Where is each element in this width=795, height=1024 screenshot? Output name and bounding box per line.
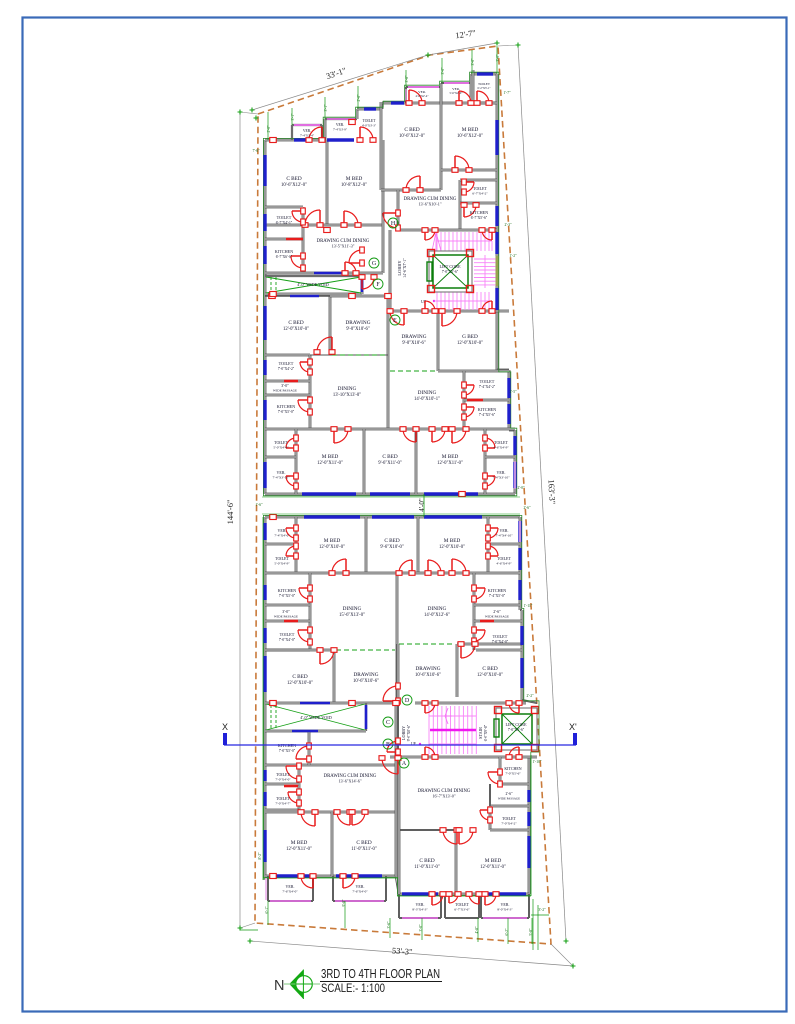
svg-text:3'-0": 3'-0": [496, 54, 500, 62]
svg-text:10'-8"X12'-0": 10'-8"X12'-0": [341, 183, 367, 188]
svg-text:12'-0"X11'-0": 12'-0"X11'-0": [286, 847, 312, 852]
svg-text:6'-7"X3'-6": 6'-7"X3'-6": [454, 908, 470, 912]
svg-text:G: G: [372, 261, 377, 267]
svg-text:M BED: M BED: [462, 127, 479, 133]
svg-text:12'-0"X11'-0": 12'-0"X11'-0": [480, 865, 506, 870]
svg-text:4'-0" WIDE VOID: 4'-0" WIDE VOID: [300, 715, 332, 720]
svg-text:LOBBY: LOBBY: [397, 260, 402, 276]
svg-text:8'-3"X4'-3": 8'-3"X4'-3": [412, 908, 428, 912]
svg-text:TOILET: TOILET: [277, 215, 292, 220]
svg-text:H: H: [391, 221, 396, 227]
svg-text:13'-6"X14'-6": 13'-6"X14'-6": [338, 778, 361, 783]
svg-text:KITCHEN: KITCHEN: [277, 404, 295, 409]
svg-text:C BED: C BED: [288, 320, 304, 326]
svg-text:6'-7"X4'-2": 6'-7"X4'-2": [472, 192, 488, 196]
svg-text:E: E: [393, 318, 397, 324]
svg-text:1'-10": 1'-10": [533, 760, 542, 764]
svg-text:WIDE PASSAGE: WIDE PASSAGE: [498, 796, 520, 800]
svg-text:M BED: M BED: [322, 454, 339, 460]
svg-text:16'-7"X13'-0": 16'-7"X13'-0": [432, 793, 455, 798]
svg-text:DRAWING: DRAWING: [415, 666, 440, 672]
svg-text:7'-0"X4'-2": 7'-0"X4'-2": [278, 367, 295, 371]
svg-text:9'-0"X10'-6": 9'-0"X10'-6": [402, 341, 426, 346]
svg-text:LIFT CORE: LIFT CORE: [505, 722, 526, 727]
svg-text:DINING: DINING: [338, 386, 357, 392]
svg-text:TOILET: TOILET: [502, 816, 516, 821]
svg-text:SCALE:- 1:100: SCALE:- 1:100: [321, 983, 385, 995]
svg-text:M BED: M BED: [291, 840, 308, 846]
svg-text:6'-2"X3'-1": 6'-2"X3'-1": [478, 86, 491, 90]
svg-text:10'-6"X12'-0": 10'-6"X12'-0": [281, 183, 307, 188]
svg-text:4'-0" WIDE VOID: 4'-0" WIDE VOID: [297, 282, 329, 287]
svg-text:KITCHEN: KITCHEN: [470, 210, 488, 215]
svg-text:DRAWING: DRAWING: [401, 334, 426, 340]
svg-text:TOILET: TOILET: [497, 556, 511, 561]
svg-text:7'-4"X3'-10": 7'-4"X3'-10": [492, 476, 510, 480]
svg-text:TOILET: TOILET: [276, 796, 290, 801]
svg-text:3'-8": 3'-8": [405, 75, 409, 83]
svg-text:WIDE PASSAGE: WIDE PASSAGE: [485, 615, 509, 619]
svg-text:12'-0"X11'-0": 12'-0"X11'-0": [317, 461, 343, 466]
svg-text:A: A: [402, 761, 407, 767]
svg-text:10'-6"X12'-0": 10'-6"X12'-0": [399, 134, 425, 139]
svg-text:3'-6": 3'-6": [441, 67, 445, 75]
svg-text:2'-0": 2'-0": [517, 486, 525, 490]
svg-text:4'-6"X4'-9": 4'-6"X4'-9": [496, 562, 512, 566]
svg-text:TOILET: TOILET: [473, 186, 487, 191]
svg-text:2'-2": 2'-2": [526, 694, 534, 698]
svg-text:9'-6"X10'-0": 9'-6"X10'-0": [380, 545, 404, 550]
svg-text:X: X: [222, 722, 228, 732]
svg-text:6'-1": 6'-1": [265, 906, 269, 914]
svg-text:2'-3": 2'-3": [504, 223, 512, 227]
svg-text:6'-7"X4'-1": 6'-7"X4'-1": [276, 221, 293, 225]
svg-text:3'-6": 3'-6": [471, 58, 475, 66]
svg-text:VER.: VER.: [497, 470, 506, 475]
svg-text:DINING: DINING: [428, 606, 447, 612]
svg-text:3RD TO 4TH FLOOR PLAN: 3RD TO 4TH FLOOR PLAN: [321, 966, 440, 981]
svg-text:7'-0"X4'-0": 7'-0"X4'-0": [279, 638, 296, 642]
svg-text:12'-0"X10'-0": 12'-0"X10'-0": [457, 341, 483, 346]
svg-text:4'-0": 4'-0": [418, 498, 426, 512]
svg-text:12'-0"X11'-0": 12'-0"X11'-0": [437, 461, 463, 466]
svg-text:5'-0"X4'-9": 5'-0"X4'-9": [274, 562, 290, 566]
svg-text:1'-2": 1'-2": [509, 254, 517, 258]
svg-text:LIFT CORE: LIFT CORE: [439, 264, 460, 269]
svg-text:D: D: [405, 698, 410, 704]
svg-text:3'-6": 3'-6": [387, 921, 391, 929]
svg-text:DINING: DINING: [418, 390, 437, 396]
svg-text:STAIR: STAIR: [478, 727, 483, 739]
svg-text:3'-1": 3'-1": [324, 104, 328, 112]
svg-text:7'-6"X4'-0": 7'-6"X4'-0": [282, 890, 298, 894]
svg-text:6'-0"X9'-8": 6'-0"X9'-8": [484, 724, 488, 741]
svg-text:TOILET: TOILET: [280, 632, 295, 637]
svg-text:9'-6"X11'-0": 9'-6"X11'-0": [378, 461, 402, 466]
svg-text:7'-0"X5'-6": 7'-0"X5'-6": [508, 728, 525, 732]
svg-text:M BED: M BED: [324, 538, 341, 544]
svg-text:C: C: [386, 720, 390, 726]
svg-text:12'-0"X10'-0": 12'-0"X10'-0": [477, 673, 503, 678]
svg-text:6'-7"X5'-6": 6'-7"X5'-6": [471, 216, 488, 220]
svg-text:13'-6"X10'-1": 13'-6"X10'-1": [418, 201, 441, 206]
svg-text:4'-0"X3'-3": 4'-0"X3'-3": [362, 123, 377, 127]
svg-text:7'-4"X5'-0": 7'-4"X5'-0": [489, 594, 506, 598]
svg-text:KITCHEN: KITCHEN: [278, 588, 296, 593]
svg-text:C BED: C BED: [286, 176, 302, 182]
svg-text:KITCHEN: KITCHEN: [478, 407, 496, 412]
svg-text:VER.: VER.: [278, 528, 287, 533]
svg-text:7'-4"X4'-10": 7'-4"X4'-10": [495, 534, 513, 538]
svg-text:9'-8": 9'-8": [342, 899, 346, 907]
svg-text:9'-0"X10'-6": 9'-0"X10'-6": [346, 327, 370, 332]
svg-text:3'-0": 3'-0": [419, 924, 423, 932]
svg-text:12'-0"X10'-0": 12'-0"X10'-0": [439, 545, 465, 550]
svg-text:10'-6"X10'-6": 10'-6"X10'-6": [415, 673, 441, 678]
svg-text:11'-0"X11'-0": 11'-0"X11'-0": [351, 847, 377, 852]
svg-text:G BED: G BED: [462, 334, 478, 340]
svg-text:KITCHEN: KITCHEN: [275, 249, 293, 254]
svg-text:3'-2": 3'-2": [538, 908, 546, 912]
svg-text:KITCHEN: KITCHEN: [488, 588, 506, 593]
svg-text:7'-4"X3'-10": 7'-4"X3'-10": [272, 476, 290, 480]
svg-text:7'-0"X5'-0": 7'-0"X5'-0": [279, 594, 296, 598]
svg-text:7'-0"X4'-7": 7'-0"X4'-7": [275, 802, 291, 806]
svg-text:163'-3": 163'-3": [546, 479, 557, 504]
svg-text:7'-0"X5'-0": 7'-0"X5'-0": [278, 410, 295, 414]
svg-text:7'-0"X5'-6": 7'-0"X5'-6": [442, 270, 459, 274]
svg-text:C BED: C BED: [292, 674, 308, 680]
svg-text:5'-6"X2'-0": 5'-6"X2'-0": [450, 91, 463, 95]
svg-text:7'-4"X4'-2": 7'-4"X4'-2": [479, 385, 496, 389]
svg-text:15'-6"X13'-0": 15'-6"X13'-0": [339, 613, 365, 618]
svg-text:7'-4"X2'-4": 7'-4"X2'-4": [300, 133, 315, 137]
svg-text:TOILET: TOILET: [494, 440, 508, 445]
svg-text:3'-1": 3'-1": [291, 113, 295, 121]
svg-text:7'-0"X5'-0": 7'-0"X5'-0": [279, 749, 296, 753]
svg-text:N: N: [274, 978, 284, 994]
svg-text:7'-4"X4'-0": 7'-4"X4'-0": [274, 534, 290, 538]
svg-text:7'-4"X3'-9": 7'-4"X3'-9": [333, 127, 348, 131]
svg-text:144'-6": 144'-6": [225, 500, 235, 525]
svg-text:12'-0"X10'-0": 12'-0"X10'-0": [319, 545, 345, 550]
svg-text:7'-6": 7'-6": [252, 149, 260, 153]
svg-text:C BED: C BED: [419, 858, 435, 864]
svg-text:VER.: VER.: [501, 902, 510, 907]
svg-text:10'-6"X12'-0": 10'-6"X12'-0": [457, 134, 483, 139]
svg-text:53'-3": 53'-3": [392, 945, 413, 957]
svg-text:13'-5"X11'-3": 13'-5"X11'-3": [332, 243, 355, 248]
svg-text:2'-5": 2'-5": [509, 390, 517, 394]
svg-text:DRAWING: DRAWING: [353, 672, 378, 678]
svg-text:M BED: M BED: [346, 176, 363, 182]
svg-text:M BED: M BED: [485, 858, 502, 864]
svg-text:WIDE PASSAGE: WIDE PASSAGE: [274, 615, 298, 619]
svg-text:TOILET: TOILET: [480, 379, 495, 384]
svg-text:WIDE PASSAGE: WIDE PASSAGE: [273, 389, 297, 393]
svg-text:14'-0"X10'-1": 14'-0"X10'-1": [414, 397, 440, 402]
svg-text:KITCHEN: KITCHEN: [504, 766, 521, 771]
svg-text:C BED: C BED: [384, 538, 400, 544]
svg-text:1'-11": 1'-11": [524, 604, 533, 608]
svg-text:C BED: C BED: [356, 840, 372, 846]
svg-text:8'-0"X4'-3": 8'-0"X4'-3": [497, 908, 513, 912]
svg-text:TOILET: TOILET: [275, 556, 289, 561]
svg-text:TOILET: TOILET: [455, 902, 469, 907]
svg-text:DRAWING: DRAWING: [345, 320, 370, 326]
svg-text:DINING: DINING: [343, 606, 362, 612]
svg-text:8'-2": 8'-2": [258, 852, 262, 860]
svg-text:1'-6": 1'-6": [255, 503, 263, 507]
svg-text:C BED: C BED: [482, 666, 498, 672]
svg-text:VER.: VER.: [500, 528, 509, 533]
svg-text:2'-6": 2'-6": [357, 94, 361, 102]
svg-text:10'-6"X10'-6": 10'-6"X10'-6": [353, 679, 379, 684]
svg-text:1'-7": 1'-7": [503, 91, 511, 95]
svg-text:2'-6": 2'-6": [523, 506, 531, 510]
svg-text:3'-0": 3'-0": [281, 383, 289, 388]
svg-text:5'-0"X4'-9": 5'-0"X4'-9": [273, 446, 289, 450]
svg-text:7'-0"X4'-0": 7'-0"X4'-0": [492, 640, 509, 644]
svg-text:6'-2": 6'-2": [505, 928, 509, 936]
svg-text:13'-10"X13'-0": 13'-10"X13'-0": [333, 393, 361, 398]
svg-text:12'-0"X10'-0": 12'-0"X10'-0": [283, 327, 309, 332]
svg-text:VER.: VER.: [416, 902, 425, 907]
svg-text:14'-6"X7'-1": 14'-6"X7'-1": [403, 258, 407, 278]
svg-text:C BED: C BED: [404, 127, 420, 133]
svg-text:VER.: VER.: [277, 470, 286, 475]
svg-text:M BED: M BED: [444, 538, 461, 544]
svg-text:7'-0"X4'-0": 7'-0"X4'-0": [275, 778, 291, 782]
svg-text:14'-0"X12'-6": 14'-0"X12'-6": [424, 613, 450, 618]
svg-text:2'-6": 2'-6": [493, 609, 501, 614]
svg-text:12'-0"X10'-0": 12'-0"X10'-0": [287, 681, 313, 686]
svg-text:5'-8": 5'-8": [529, 928, 533, 936]
svg-text:2'-0": 2'-0": [267, 125, 271, 133]
svg-text:TOILET: TOILET: [279, 361, 294, 366]
svg-text:7'-0"X5'-6": 7'-0"X5'-6": [505, 772, 521, 776]
svg-text:7'-4"X5'-6": 7'-4"X5'-6": [479, 413, 496, 417]
svg-text:11'-0"X11'-0": 11'-0"X11'-0": [414, 865, 440, 870]
svg-text:VER.: VER.: [286, 884, 295, 889]
svg-text:TOILET: TOILET: [493, 634, 508, 639]
svg-text:X': X': [569, 722, 577, 732]
svg-text:4'-6"X4'-9": 4'-6"X4'-9": [493, 446, 509, 450]
svg-text:3'-0": 3'-0": [282, 609, 290, 614]
svg-text:4'-0"X2'-4": 4'-0"X2'-4": [416, 94, 429, 98]
svg-text:7'-6"X4'-0": 7'-6"X4'-0": [352, 890, 368, 894]
svg-text:TOILET: TOILET: [274, 440, 288, 445]
svg-text:9'-0"X8'-6": 9'-0"X8'-6": [407, 724, 411, 741]
svg-text:6'-7"X6'-0": 6'-7"X6'-0": [276, 255, 293, 259]
svg-text:C BED: C BED: [382, 454, 398, 460]
svg-text:7'-0"X4'-2": 7'-0"X4'-2": [501, 822, 517, 826]
svg-text:VER.: VER.: [356, 884, 365, 889]
svg-text:TOILET: TOILET: [276, 772, 290, 777]
svg-text:4'-8": 4'-8": [475, 926, 479, 934]
svg-text:LOBBY: LOBBY: [401, 726, 406, 740]
svg-text:M BED: M BED: [442, 454, 459, 460]
